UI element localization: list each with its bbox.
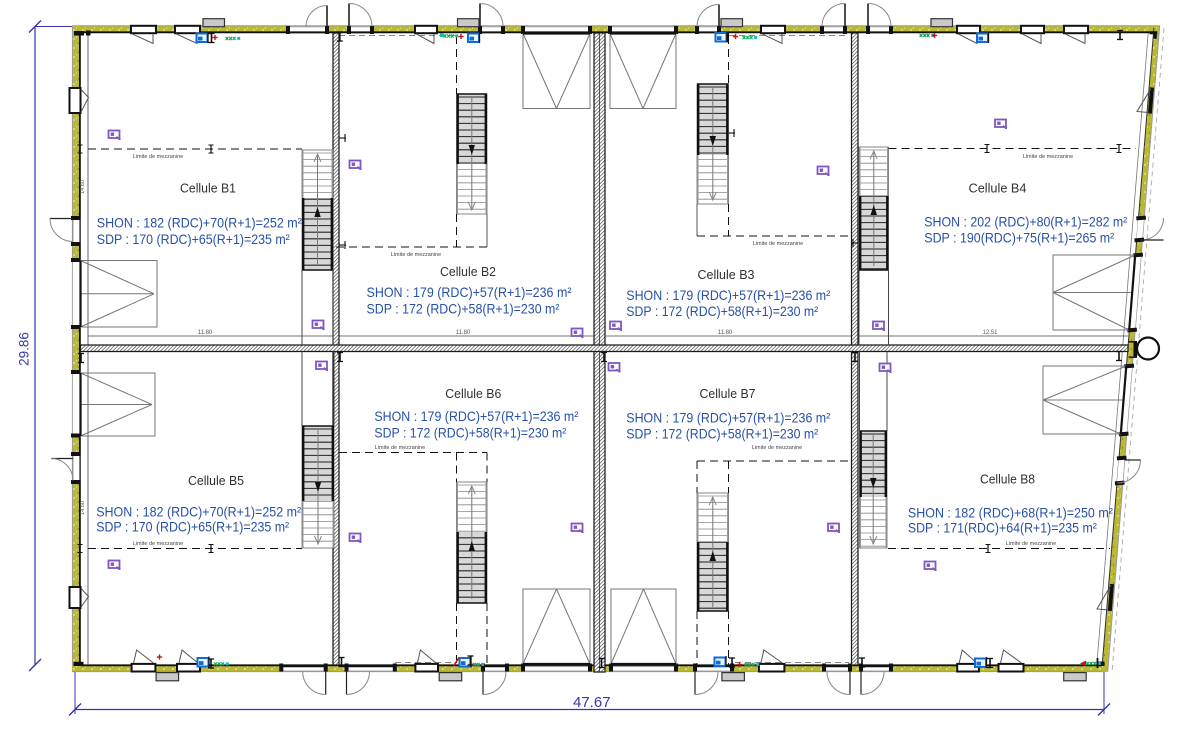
svg-text:SHON : 182 (RDC)+70(R+1)=252 m: SHON : 182 (RDC)+70(R+1)=252 m² <box>97 216 302 231</box>
svg-text:SHON : 182 (RDC)+70(R+1)=252 m: SHON : 182 (RDC)+70(R+1)=252 m² <box>96 505 301 520</box>
svg-text:Cellule B4: Cellule B4 <box>969 181 1027 196</box>
svg-text:Cellule B7: Cellule B7 <box>700 386 756 401</box>
svg-text:Limite de mezzanine: Limite de mezzanine <box>133 154 183 160</box>
svg-text:SDP : 170 (RDC)+65(R+1)=235 m²: SDP : 170 (RDC)+65(R+1)=235 m² <box>96 520 289 535</box>
svg-text:Limite de mezzanine: Limite de mezzanine <box>753 241 803 247</box>
svg-text:11.80: 11.80 <box>198 330 213 336</box>
svg-text:SHON : 182 (RDC)+68(R+1)=250 m: SHON : 182 (RDC)+68(R+1)=250 m² <box>908 506 1113 521</box>
svg-text:11.80: 11.80 <box>718 330 733 336</box>
svg-text:29.86: 29.86 <box>17 332 32 366</box>
svg-text:Limite de mezzanine: Limite de mezzanine <box>375 445 425 451</box>
svg-text:SDP : 171(RDC)+64(R+1)=235 m²: SDP : 171(RDC)+64(R+1)=235 m² <box>908 521 1097 536</box>
svg-text:14.60: 14.60 <box>80 501 86 515</box>
svg-text:14.60: 14.60 <box>80 180 86 194</box>
svg-text:Cellule B8: Cellule B8 <box>980 472 1035 487</box>
svg-text:12.51: 12.51 <box>982 330 998 336</box>
svg-text:SDP : 172 (RDC)+58(R+1)=230 m²: SDP : 172 (RDC)+58(R+1)=230 m² <box>374 426 566 441</box>
svg-text:47.67: 47.67 <box>573 694 611 711</box>
svg-text:SDP : 170 (RDC)+65(R+1)=235 m²: SDP : 170 (RDC)+65(R+1)=235 m² <box>97 232 290 247</box>
svg-text:Cellule B3: Cellule B3 <box>698 267 755 282</box>
svg-text:Cellule B2: Cellule B2 <box>440 264 496 279</box>
svg-text:11.80: 11.80 <box>456 330 471 336</box>
svg-text:Limite de mezzanine: Limite de mezzanine <box>391 252 441 258</box>
svg-text:SHON : 179 (RDC)+57(R+1)=236 m: SHON : 179 (RDC)+57(R+1)=236 m² <box>367 285 572 300</box>
svg-text:SDP : 172 (RDC)+58(R+1)=230 m²: SDP : 172 (RDC)+58(R+1)=230 m² <box>626 304 818 319</box>
svg-text:Limite de mezzanine: Limite de mezzanine <box>1006 541 1056 547</box>
svg-text:SDP : 172 (RDC)+58(R+1)=230 m²: SDP : 172 (RDC)+58(R+1)=230 m² <box>626 427 818 442</box>
svg-text:SDP : 172 (RDC)+58(R+1)=230 m²: SDP : 172 (RDC)+58(R+1)=230 m² <box>367 302 560 317</box>
svg-text:SHON : 179 (RDC)+57(R+1)=236 m: SHON : 179 (RDC)+57(R+1)=236 m² <box>626 411 830 426</box>
svg-text:Limite de mezzanine: Limite de mezzanine <box>133 541 183 547</box>
svg-text:SDP : 190(RDC)+75(R+1)=265 m²: SDP : 190(RDC)+75(R+1)=265 m² <box>924 231 1114 246</box>
svg-text:SHON : 179 (RDC)+57(R+1)=236 m: SHON : 179 (RDC)+57(R+1)=236 m² <box>626 288 830 303</box>
svg-text:Cellule B1: Cellule B1 <box>180 181 236 196</box>
svg-text:SHON : 202 (RDC)+80(R+1)=282 m: SHON : 202 (RDC)+80(R+1)=282 m² <box>924 215 1127 230</box>
svg-text:Cellule B6: Cellule B6 <box>445 386 501 401</box>
svg-text:Limite de mezzanine: Limite de mezzanine <box>752 445 802 451</box>
svg-text:Limite de mezzanine: Limite de mezzanine <box>1023 154 1073 160</box>
svg-text:Cellule B5: Cellule B5 <box>188 473 244 488</box>
svg-text:SHON : 179 (RDC)+57(R+1)=236 m: SHON : 179 (RDC)+57(R+1)=236 m² <box>374 409 578 424</box>
